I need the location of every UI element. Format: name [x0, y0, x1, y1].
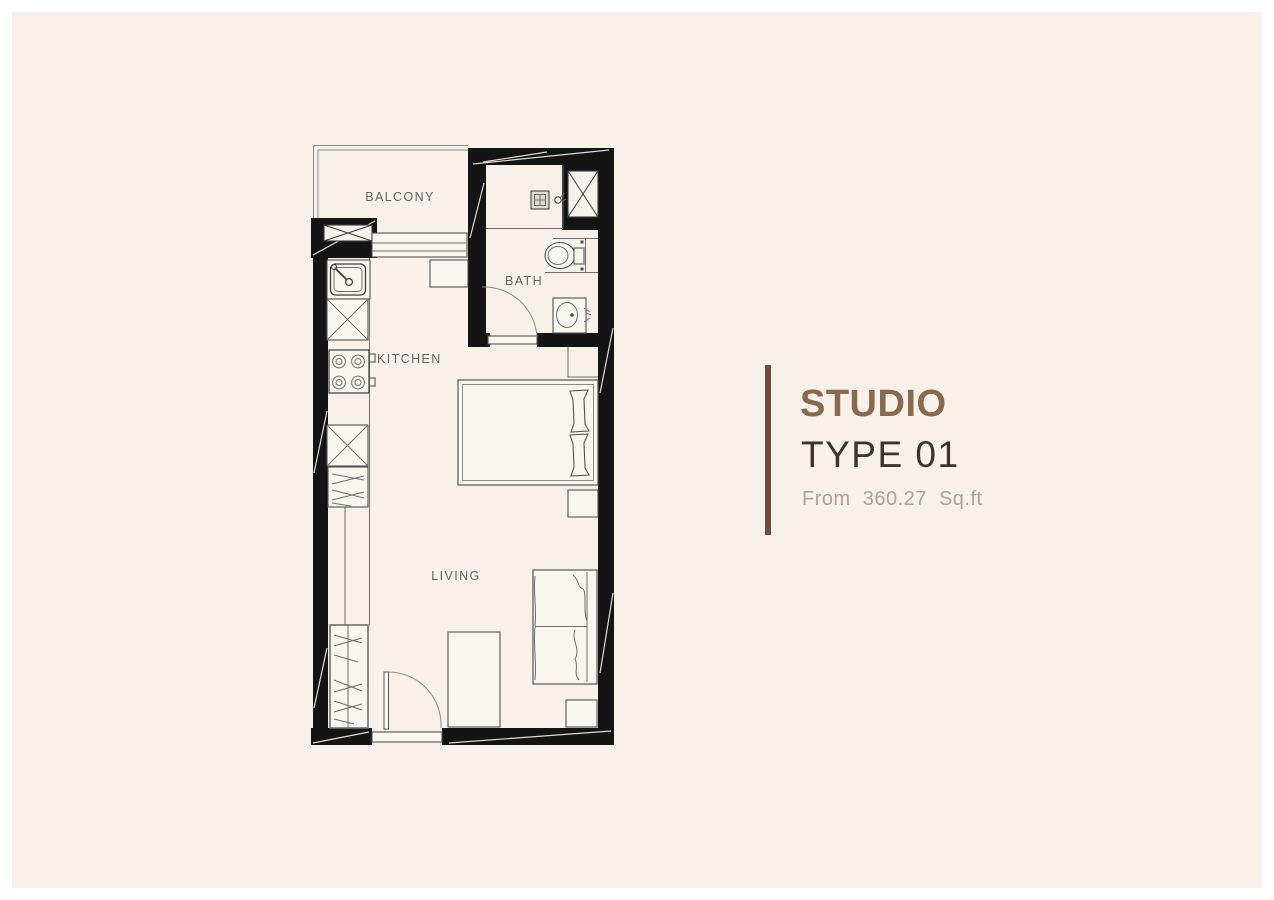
brochure-page: BALCONY [0, 0, 1274, 900]
base-cabinet-x-upper [327, 299, 368, 340]
background-panel [12, 12, 1262, 888]
entry-threshold [372, 732, 442, 742]
wall-right [598, 148, 614, 745]
wall-bath-bottom-stub [468, 333, 490, 347]
bath-door-swing-arc [482, 287, 537, 337]
sofa [533, 570, 597, 684]
living-label: LIVING [431, 569, 480, 583]
parapet-outer [314, 146, 469, 219]
nightstand [568, 490, 598, 517]
sliding-window [372, 233, 467, 257]
wall-bath-bottom [537, 333, 614, 347]
balcony: BALCONY [314, 146, 469, 258]
vanity-basin [553, 298, 591, 333]
bath-label: BATH [505, 274, 543, 288]
balcony-label: BALCONY [365, 190, 435, 204]
parapet-inner [318, 150, 468, 218]
shower-drain [531, 191, 549, 209]
wall-left [313, 218, 328, 745]
wall-bath-left [468, 148, 486, 347]
kitchen-label: KITCHEN [377, 352, 442, 366]
wall-bottom-right [442, 728, 614, 745]
toilet [545, 239, 598, 273]
shower-screen [486, 165, 563, 229]
entry-door-swing-arc [389, 672, 442, 728]
hall-counter [430, 260, 468, 287]
wardrobe [330, 625, 368, 728]
entry-door-leaf [384, 672, 389, 729]
refrigerator [328, 467, 368, 507]
wall-bottom-left [311, 728, 372, 745]
stove [329, 350, 375, 393]
bath-door-leaf [488, 336, 537, 344]
kitchen-sink [327, 260, 370, 299]
bath-door [482, 287, 537, 344]
shoe-cabinet [448, 632, 500, 727]
bathroom: BATH [482, 165, 598, 344]
base-cabinet-x-lower [327, 425, 368, 466]
floor-plan-drawing: BALCONY [311, 143, 615, 745]
kitchen: KITCHEN [327, 258, 442, 625]
side-table [566, 700, 597, 727]
stove-knob [370, 378, 376, 386]
bed [458, 380, 598, 485]
storage-niche [568, 347, 598, 377]
stove-knob [370, 354, 376, 362]
entry-door [372, 672, 442, 742]
floor-plan: BALCONY [311, 143, 615, 745]
